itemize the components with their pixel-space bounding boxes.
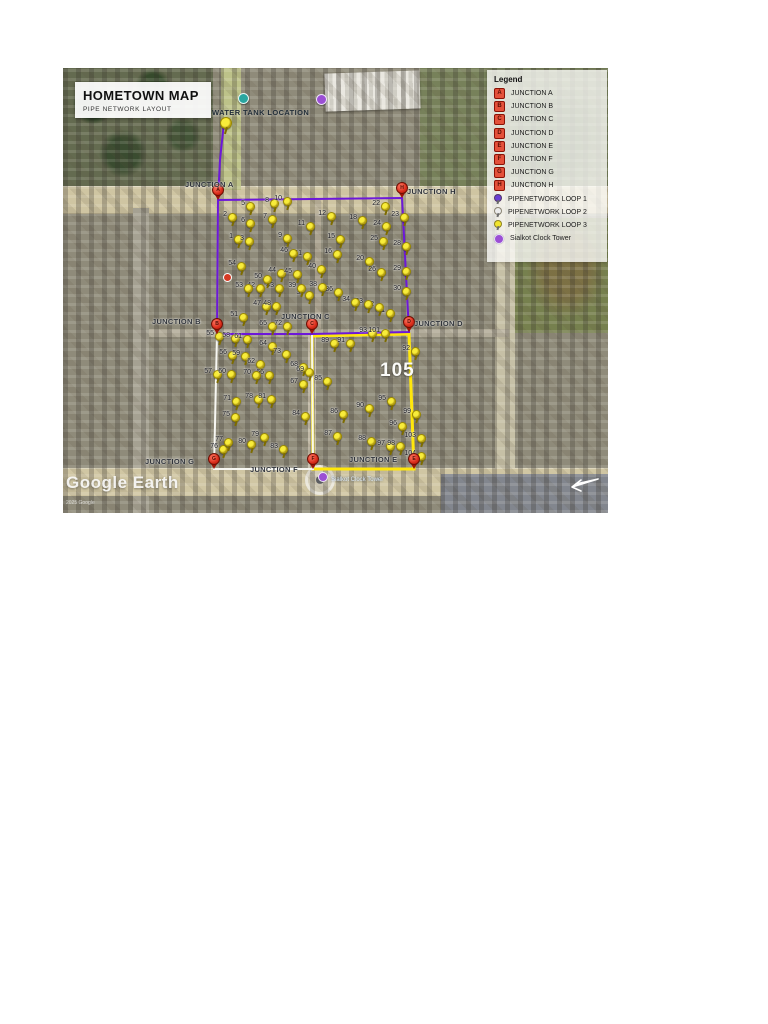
legend-clock-tower-icon xyxy=(494,234,504,244)
pushpin-number: 28 xyxy=(393,240,401,248)
junction-pin-letter: E xyxy=(408,453,420,465)
legend-pushpin-icon xyxy=(494,194,502,204)
pushpin-60[interactable]: 60 xyxy=(227,370,235,380)
pushpin-icon xyxy=(358,216,367,225)
pushpin-29[interactable]: 29 xyxy=(402,267,410,277)
pushpin-number: 2 xyxy=(223,211,227,219)
pushpin-icon xyxy=(245,237,254,246)
pushpin-73[interactable]: 73 xyxy=(282,350,290,360)
junction-pin-tail xyxy=(214,329,220,337)
pushpin-icon xyxy=(379,237,388,246)
pushpin-icon xyxy=(402,287,411,296)
pushpin-icon xyxy=(417,434,426,443)
pushpin-9[interactable]: 9 xyxy=(283,234,291,244)
pushpin-number: 99 xyxy=(403,408,411,416)
pushpin-3[interactable]: 3 xyxy=(245,237,253,247)
pushpin-96[interactable]: 96 xyxy=(398,422,406,432)
legend-item-label: JUNCTION H xyxy=(511,182,553,189)
pushpin-number: 50 xyxy=(254,273,262,281)
pushpin-11[interactable]: 11 xyxy=(306,222,314,232)
pushpin-number: 81 xyxy=(258,393,266,401)
pushpin-icon xyxy=(227,370,236,379)
pushpin-icon xyxy=(283,197,292,206)
pushpin-number: 11 xyxy=(298,220,305,228)
junction-pin-tail xyxy=(211,464,217,472)
legend-junction-icon: E xyxy=(494,141,505,152)
pushpin-icon xyxy=(339,410,348,419)
junction-label-F: JUNCTION F xyxy=(250,465,298,474)
legend-junction-icon: A xyxy=(494,88,505,99)
junction-marker-E[interactable]: E xyxy=(408,453,420,469)
junction-pin-tail xyxy=(310,464,316,472)
pushpin-101[interactable]: 101 xyxy=(381,329,389,339)
pushpin-number: 73 xyxy=(273,348,281,356)
pushpin-icon xyxy=(364,300,373,309)
pushpin-71[interactable]: 71 xyxy=(232,397,240,407)
pushpin-number: 30 xyxy=(393,285,401,293)
pushpin-number: 77 xyxy=(215,436,223,444)
pushpin-icon xyxy=(400,213,409,222)
pushpin-icon xyxy=(334,288,343,297)
pushpin-number: 48 xyxy=(263,300,271,308)
pushpin-icon xyxy=(336,235,345,244)
pushpin-icon xyxy=(301,412,310,421)
pushpin-98[interactable]: 98 xyxy=(396,442,404,452)
pushpin-icon xyxy=(333,432,342,441)
pushpin-icon xyxy=(365,257,374,266)
pushpin-66[interactable]: 66 xyxy=(265,371,273,381)
legend-pushpin-icon xyxy=(494,220,502,230)
clock-tower-icon[interactable] xyxy=(318,472,328,482)
legend-junction-icon: B xyxy=(494,101,505,112)
pushpin-number: 34 xyxy=(342,296,350,304)
pushpin-15[interactable]: 15 xyxy=(336,235,344,245)
pushpin-icon xyxy=(247,440,256,449)
pushpin-icon xyxy=(381,202,390,211)
pushpin-icon xyxy=(365,404,374,413)
pushpin-icon xyxy=(279,445,288,454)
pushpin-number: 20 xyxy=(356,255,364,263)
pushpin-number: 97 xyxy=(377,440,385,448)
legend-item: FJUNCTION F xyxy=(494,153,603,166)
pushpin-75[interactable]: 75 xyxy=(231,413,239,423)
pushpin-number: 80 xyxy=(238,438,246,446)
pushpin-icon xyxy=(282,350,291,359)
pushpin-31[interactable]: 31 xyxy=(386,309,394,319)
pushpin-icon xyxy=(256,360,265,369)
map-title-box: HOMETOWN MAP PIPE NETWORK LAYOUT xyxy=(75,82,211,118)
junction-marker-G[interactable]: G xyxy=(208,453,220,469)
copyright-text: 2025 Google xyxy=(66,500,95,506)
pushpin-number: 54 xyxy=(228,260,236,268)
pushpin-number: 69 xyxy=(296,366,304,374)
legend-item: PIPENETWORK LOOP 3 xyxy=(494,219,603,232)
junction-label-E: JUNCTION E xyxy=(349,455,397,464)
junction-pin-tail xyxy=(399,193,405,201)
pushpin-icon xyxy=(386,309,395,318)
legend-item: GJUNCTION G xyxy=(494,166,603,179)
pushpin-icon xyxy=(346,339,355,348)
pushpin-number: 53 xyxy=(235,282,243,290)
pushpin-icon xyxy=(265,371,274,380)
pushpin-85[interactable]: 85 xyxy=(323,377,331,387)
legend-junction-icon: D xyxy=(494,128,505,139)
pushpin-92[interactable]: 92 xyxy=(411,347,419,357)
pushpin-12[interactable]: 12 xyxy=(327,212,335,222)
pushpin-icon xyxy=(317,265,326,274)
pushpin-number: 45 xyxy=(284,268,292,276)
pushpin-number: 25 xyxy=(370,235,378,243)
legend-junction-icon: G xyxy=(494,167,505,178)
junction-pin-tail xyxy=(215,195,221,203)
pushpin-number: 56 xyxy=(219,349,227,357)
pushpin-number: 85 xyxy=(314,375,322,383)
pushpin-16[interactable]: 16 xyxy=(333,250,341,260)
pushpin-7[interactable]: 7 xyxy=(268,215,276,225)
legend-item: CJUNCTION C xyxy=(494,113,603,126)
pushpin-42[interactable]: 42 xyxy=(256,284,264,294)
pushpin-icon xyxy=(283,234,292,243)
pushpin-69[interactable]: 69 xyxy=(305,368,313,378)
pushpin-icon xyxy=(306,222,315,231)
pushpin-number: 92 xyxy=(402,345,410,353)
pushpin-icon xyxy=(283,322,292,331)
pushpin-91[interactable]: 91 xyxy=(346,339,354,349)
pushpin-103[interactable]: 103 xyxy=(417,434,425,444)
pushpin-number: 62 xyxy=(247,358,255,366)
legend-junction-icon: H xyxy=(494,180,505,191)
junction-marker-F[interactable]: F xyxy=(307,453,319,469)
pushpin-80[interactable]: 80 xyxy=(247,440,255,450)
pushpin-icon xyxy=(402,267,411,276)
pushpin-number: 18 xyxy=(349,214,357,222)
junction-pin-letter: G xyxy=(208,453,220,465)
pushpin-icon xyxy=(231,413,240,422)
map-title: HOMETOWN MAP xyxy=(83,88,205,103)
pushpin-86[interactable]: 86 xyxy=(339,410,347,420)
pushpin-icon xyxy=(303,252,312,261)
legend-item: Sialkot Clock Tower xyxy=(494,232,603,245)
pushpin-number: 16 xyxy=(324,248,332,256)
legend-junction-icon: C xyxy=(494,114,505,125)
pushpin-26[interactable]: 26 xyxy=(377,268,385,278)
pushpin-number: 40 xyxy=(308,263,316,271)
pushpin-72[interactable]: 72 xyxy=(283,322,291,332)
google-earth-watermark: Google Earth xyxy=(66,473,179,493)
pushpin-icon xyxy=(327,212,336,221)
pushpin-number: 60 xyxy=(218,368,226,376)
pushpin-34[interactable]: 34 xyxy=(351,298,359,308)
legend-item-label: JUNCTION D xyxy=(511,130,553,137)
pushpin-number: 61 xyxy=(234,333,242,341)
north-arrow-icon xyxy=(559,474,601,496)
pushpin-icon xyxy=(333,250,342,259)
pushpin-number: 12 xyxy=(318,210,326,218)
clock-tower-label: Sialkot Clock Tower xyxy=(331,477,383,483)
legend-item: PIPENETWORK LOOP 1 xyxy=(494,193,603,206)
legend-item-label: PIPENETWORK LOOP 3 xyxy=(508,222,587,229)
pushpin-icon xyxy=(375,303,384,312)
pushpin-icon xyxy=(272,302,281,311)
pushpin-2[interactable]: 2 xyxy=(228,213,236,223)
legend-item-label: JUNCTION B xyxy=(511,103,553,110)
pushpin-icon xyxy=(224,438,233,447)
junction-marker-B[interactable]: B xyxy=(211,318,223,334)
pushpin-50[interactable]: 50 xyxy=(263,275,271,285)
pushpin-icon xyxy=(387,397,396,406)
legend-item: PIPENETWORK LOOP 2 xyxy=(494,206,603,219)
pushpin-30[interactable]: 30 xyxy=(402,287,410,297)
legend-item-label: PIPENETWORK LOOP 2 xyxy=(508,209,587,216)
satellite-map[interactable]: 1235678910111215161820222324252628293031… xyxy=(63,68,608,513)
pushpin-number: 96 xyxy=(389,420,397,428)
map-subtitle: PIPE NETWORK LAYOUT xyxy=(83,106,205,113)
pushpin-number: 29 xyxy=(393,265,401,273)
pushpin-number: 86 xyxy=(330,408,338,416)
pushpin-icon xyxy=(232,397,241,406)
pushpin-84[interactable]: 84 xyxy=(301,412,309,422)
parcel-number-105: 105 xyxy=(380,360,415,382)
pushpin-83[interactable]: 83 xyxy=(279,445,287,455)
pushpin-number: 44 xyxy=(268,267,276,275)
pushpin-icon xyxy=(263,275,272,284)
pushpin-87[interactable]: 87 xyxy=(333,432,341,442)
pushpin-icon xyxy=(289,249,298,258)
pushpin-icon xyxy=(256,284,265,293)
pushpin-number: 59 xyxy=(232,350,240,358)
pushpin-number: 38 xyxy=(309,281,317,289)
poi-icon-purple[interactable] xyxy=(316,94,327,105)
pushpin-icon xyxy=(267,395,276,404)
pushpin-43[interactable]: 43 xyxy=(275,284,283,294)
junction-label-B: JUNCTION B xyxy=(152,317,201,326)
pushpin-icon xyxy=(412,410,421,419)
pushpin-6[interactable]: 6 xyxy=(246,219,254,229)
pushpin-icon xyxy=(243,335,252,344)
pushpin-number: 57 xyxy=(204,368,212,376)
pushpin-number: 88 xyxy=(358,435,366,443)
pushpin-icon xyxy=(252,371,261,380)
pushpin-number: 78 xyxy=(245,393,253,401)
pushpin-number: 83 xyxy=(270,443,278,451)
pushpin-77[interactable]: 77 xyxy=(224,438,232,448)
junction-label-H: JUNCTION H xyxy=(407,187,456,196)
legend-panel: Legend AJUNCTION ABJUNCTION BCJUNCTION C… xyxy=(487,70,607,262)
pushpin-number: 6 xyxy=(241,217,245,225)
pushpin-number: 65 xyxy=(259,320,267,328)
pushpin-number: 64 xyxy=(259,340,267,348)
pushpin-icon xyxy=(318,283,327,292)
junction-label-A: JUNCTION A xyxy=(185,180,234,189)
pushpin-37[interactable]: 37 xyxy=(305,291,313,301)
legend-rows: AJUNCTION ABJUNCTION BCJUNCTION CDJUNCTI… xyxy=(494,87,603,245)
pushpin-number: 84 xyxy=(292,410,300,418)
pushpin-number: 47 xyxy=(253,300,261,308)
pushpin-number: 95 xyxy=(378,395,386,403)
pushpin-10[interactable]: 10 xyxy=(283,197,291,207)
pushpin-number: 103 xyxy=(404,432,416,440)
pushpin-51[interactable]: 51 xyxy=(239,313,247,323)
pushpin-number: 8 xyxy=(265,197,269,205)
pushpin-icon xyxy=(260,433,269,442)
pushpin-79[interactable]: 79 xyxy=(260,433,268,443)
pushpin-88[interactable]: 88 xyxy=(367,437,375,447)
junction-pin-tail xyxy=(411,464,417,472)
legend-item: DJUNCTION D xyxy=(494,127,603,140)
poi-icon-teal[interactable] xyxy=(238,93,249,104)
pushpin-67[interactable]: 67 xyxy=(299,380,307,390)
pushpin-icon xyxy=(323,377,332,386)
legend-item-label: JUNCTION C xyxy=(511,116,553,123)
pushpin-number: 5 xyxy=(241,200,245,208)
legend-item-label: PIPENETWORK LOOP 1 xyxy=(508,196,587,203)
pushpin-icon xyxy=(246,202,255,211)
pushpin-number: 15 xyxy=(327,233,335,241)
pushpin-number: 9 xyxy=(278,232,282,240)
pushpin-icon xyxy=(411,347,420,356)
pushpin-36[interactable]: 36 xyxy=(334,288,342,298)
pushpin-icon xyxy=(220,117,232,129)
pushpin-number: 93 xyxy=(359,327,367,335)
pushpin-41[interactable]: 41 xyxy=(303,252,311,262)
pushpin-number: 101 xyxy=(368,327,380,335)
legend-pushpin-icon xyxy=(494,207,502,217)
legend-item-label: JUNCTION F xyxy=(511,156,553,163)
junction-pin-letter: F xyxy=(307,453,319,465)
pushpin-22[interactable]: 22 xyxy=(381,202,389,212)
pushpin-icon xyxy=(297,284,306,293)
pushpin-number: 3 xyxy=(240,235,244,243)
legend-title: Legend xyxy=(494,75,603,84)
pushpin-icon xyxy=(377,268,386,277)
legend-item: EJUNCTION E xyxy=(494,140,603,153)
pushpin-number: 89 xyxy=(321,337,329,345)
pushpin-45[interactable]: 45 xyxy=(293,270,301,280)
pushpin-icon xyxy=(305,291,314,300)
pushpin-number: 98 xyxy=(387,440,395,448)
pushpin-icon xyxy=(275,284,284,293)
junction-label-D: JUNCTION D xyxy=(414,319,463,328)
pushpin-icon xyxy=(268,215,277,224)
pushpin-number: 22 xyxy=(372,200,380,208)
poi-icon-red[interactable] xyxy=(223,273,232,282)
pushpin-99[interactable]: 99 xyxy=(412,410,420,420)
pushpin-23[interactable]: 23 xyxy=(400,213,408,223)
legend-item-label: JUNCTION G xyxy=(511,169,554,176)
pushpin-48[interactable]: 48 xyxy=(272,302,280,312)
junction-pin-tail xyxy=(406,327,412,335)
pushpin-icon xyxy=(305,368,314,377)
pushpin-number: 87 xyxy=(324,430,332,438)
water-tank-label: WATER TANK LOCATION xyxy=(212,108,309,117)
pushpin-number: 91 xyxy=(337,337,345,345)
pushpin-number: 71 xyxy=(223,395,231,403)
pushpin-53[interactable]: 53 xyxy=(244,284,252,294)
pushpin-icon xyxy=(239,313,248,322)
pushpin-38[interactable]: 38 xyxy=(318,283,326,293)
pushpin-number: 26 xyxy=(368,266,376,274)
pushpin-icon xyxy=(299,380,308,389)
legend-item: AJUNCTION A xyxy=(494,87,603,100)
pushpin-number: 1 xyxy=(229,233,233,241)
legend-item: BJUNCTION B xyxy=(494,100,603,113)
pushpin-81[interactable]: 81 xyxy=(267,395,275,405)
pushpin-icon xyxy=(244,284,253,293)
pushpin-90[interactable]: 90 xyxy=(365,404,373,414)
pushpin-number: 70 xyxy=(243,369,251,377)
pushpin-25[interactable]: 25 xyxy=(379,237,387,247)
legend-junction-icon: F xyxy=(494,154,505,165)
junction-label-C: JUNCTION C xyxy=(281,312,330,321)
pushpin-icon xyxy=(246,219,255,228)
pushpin-number: 90 xyxy=(356,402,364,410)
junction-pin-letter: B xyxy=(211,318,223,330)
pushpin-61[interactable]: 61 xyxy=(243,335,251,345)
pushpin-icon xyxy=(293,270,302,279)
junction-label-G: JUNCTION G xyxy=(145,457,194,466)
pushpin-icon xyxy=(398,422,407,431)
pushpin-number: 24 xyxy=(373,220,381,228)
pushpin-32[interactable]: 32 xyxy=(375,303,383,313)
pushpin-95[interactable]: 95 xyxy=(387,397,395,407)
legend-item: HJUNCTION H xyxy=(494,179,603,192)
pushpin-number: 75 xyxy=(222,411,230,419)
pushpin-number: 7 xyxy=(263,213,267,221)
pushpin-icon xyxy=(351,298,360,307)
pushpin-number: 79 xyxy=(251,431,259,439)
legend-item-label: JUNCTION A xyxy=(511,90,553,97)
pushpin-70[interactable]: 70 xyxy=(252,371,260,381)
legend-item-label: JUNCTION E xyxy=(511,143,553,150)
pushpin-39[interactable]: 39 xyxy=(297,284,305,294)
pushpin-54[interactable]: 54 xyxy=(237,262,245,272)
pushpin-icon xyxy=(228,213,237,222)
pushpin-24[interactable]: 24 xyxy=(382,222,390,232)
pushpin-number: 67 xyxy=(290,378,298,386)
pushpin-18[interactable]: 18 xyxy=(358,216,366,226)
pushpin-icon xyxy=(367,437,376,446)
pushpin-28[interactable]: 28 xyxy=(402,242,410,252)
pushpin-number: 58 xyxy=(222,332,230,340)
legend-item-label: Sialkot Clock Tower xyxy=(510,235,571,242)
pushpin-number: 46 xyxy=(280,247,288,255)
pushpin-number: 51 xyxy=(230,311,238,319)
pushpin-number: 72 xyxy=(274,320,282,328)
pushpin-46[interactable]: 46 xyxy=(289,249,297,259)
pushpin-water-tank[interactable] xyxy=(220,117,228,127)
pushpin-number: 10 xyxy=(274,195,282,203)
pushpin-33[interactable]: 33 xyxy=(364,300,372,310)
pushpin-icon xyxy=(381,329,390,338)
pushpin-number: 76 xyxy=(210,443,218,451)
pushpin-icon xyxy=(237,262,246,271)
pushpin-number: 39 xyxy=(288,282,296,290)
pushpin-5[interactable]: 5 xyxy=(246,202,254,212)
pushpin-40[interactable]: 40 xyxy=(317,265,325,275)
pushpin-icon xyxy=(382,222,391,231)
junction-pin-tail xyxy=(309,329,315,337)
pushpin-icon xyxy=(402,242,411,251)
pushpin-number: 23 xyxy=(391,211,399,219)
